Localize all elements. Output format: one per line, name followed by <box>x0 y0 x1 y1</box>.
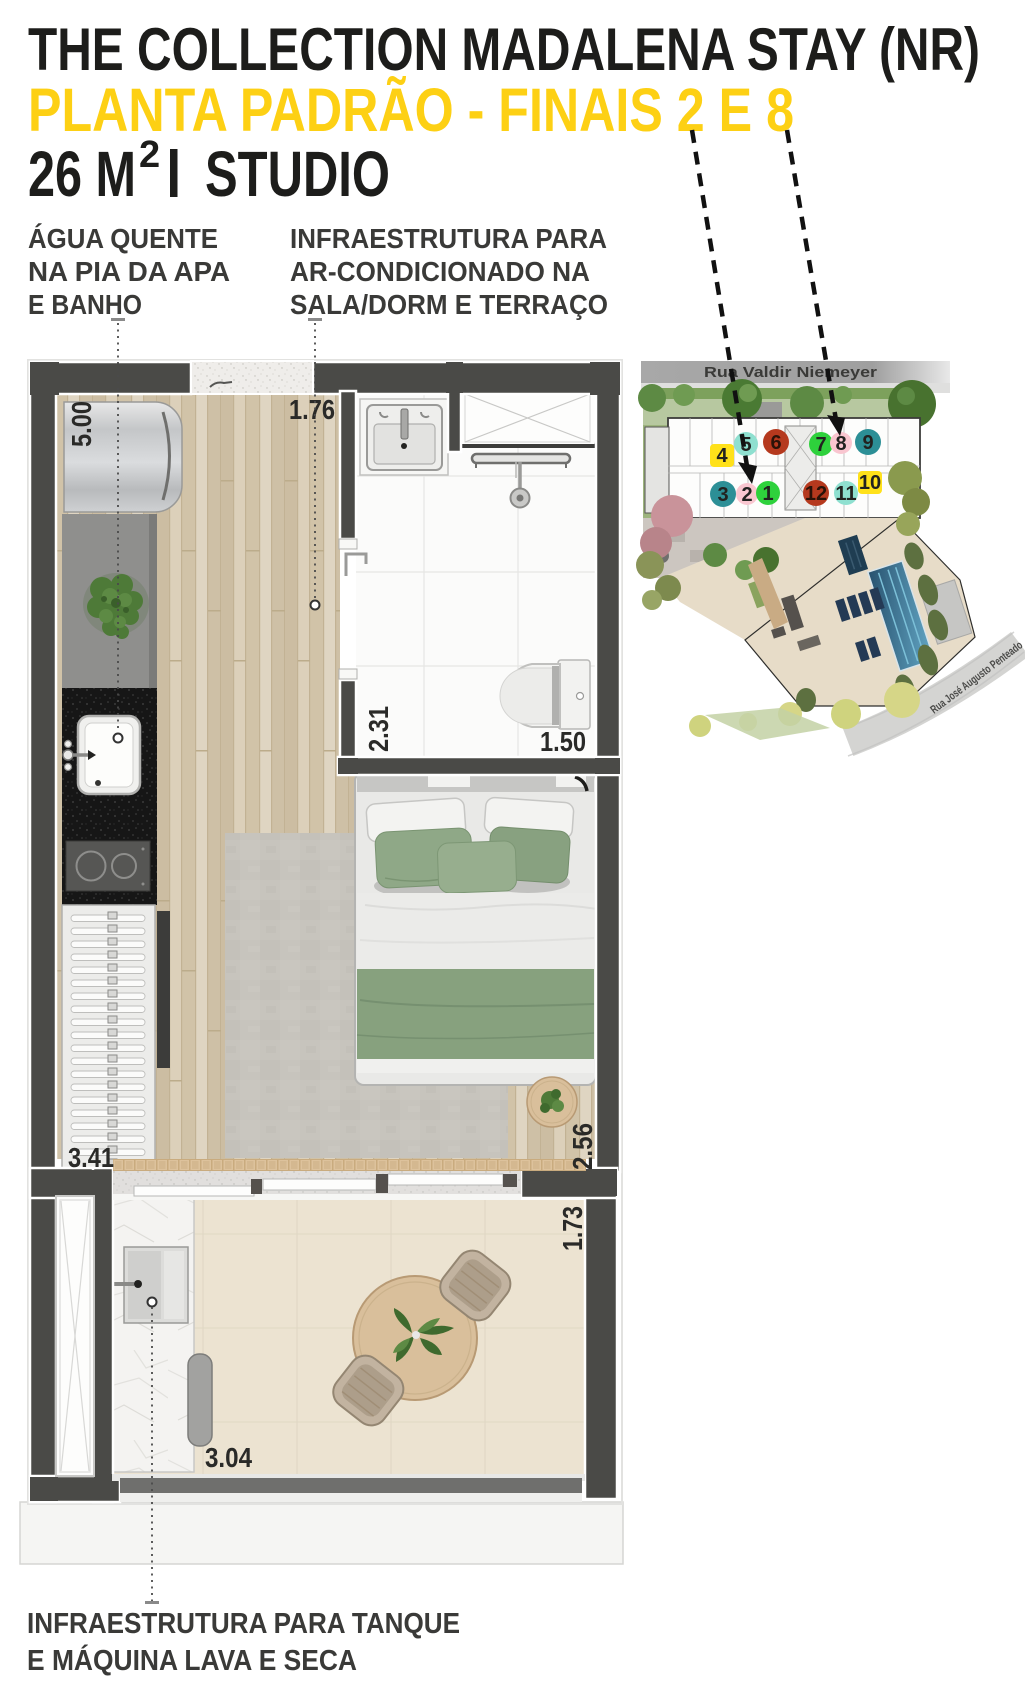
svg-text:2: 2 <box>741 484 752 506</box>
svg-text:INFRAESTRUTURA PARA TANQUE: INFRAESTRUTURA PARA TANQUE <box>27 1608 460 1640</box>
svg-text:8: 8 <box>835 433 846 455</box>
svg-text:12: 12 <box>805 483 827 505</box>
svg-text:AR-CONDICIONADO NA: AR-CONDICIONADO NA <box>290 256 590 287</box>
svg-text:11: 11 <box>835 483 856 505</box>
svg-text:5.00: 5.00 <box>66 401 97 447</box>
svg-text:3: 3 <box>717 484 728 506</box>
svg-text:SALA/DORM E TERRAÇO: SALA/DORM E TERRAÇO <box>290 289 608 320</box>
svg-text:6: 6 <box>770 432 781 454</box>
svg-text:9: 9 <box>862 432 873 454</box>
svg-text:INFRAESTRUTURA PARA: INFRAESTRUTURA PARA <box>290 223 607 254</box>
svg-text:1.73: 1.73 <box>557 1206 588 1251</box>
svg-text:10: 10 <box>859 472 881 494</box>
svg-text:NA PIA DA APA: NA PIA DA APA <box>28 256 230 287</box>
svg-text:1: 1 <box>762 483 773 505</box>
svg-text:E MÁQUINA LAVA E SECA: E MÁQUINA LAVA E SECA <box>27 1643 357 1677</box>
svg-text:ÁGUA QUENTE: ÁGUA QUENTE <box>28 223 218 254</box>
svg-text:1.50: 1.50 <box>540 726 586 757</box>
svg-text:1.76: 1.76 <box>289 394 335 425</box>
svg-text:2.56: 2.56 <box>567 1123 598 1170</box>
svg-text:3.41: 3.41 <box>68 1142 114 1173</box>
svg-text:E BANHO: E BANHO <box>28 289 142 320</box>
svg-text:STUDIO: STUDIO <box>205 138 390 210</box>
svg-text:4: 4 <box>716 445 728 467</box>
svg-text:3.04: 3.04 <box>205 1442 252 1473</box>
svg-text:2: 2 <box>139 134 160 176</box>
svg-text:26 M: 26 M <box>28 138 136 210</box>
svg-text:7: 7 <box>815 434 826 456</box>
svg-text:2.31: 2.31 <box>363 706 394 752</box>
svg-text:THE COLLECTION MADALENA STAY (: THE COLLECTION MADALENA STAY (NR) <box>28 16 980 83</box>
